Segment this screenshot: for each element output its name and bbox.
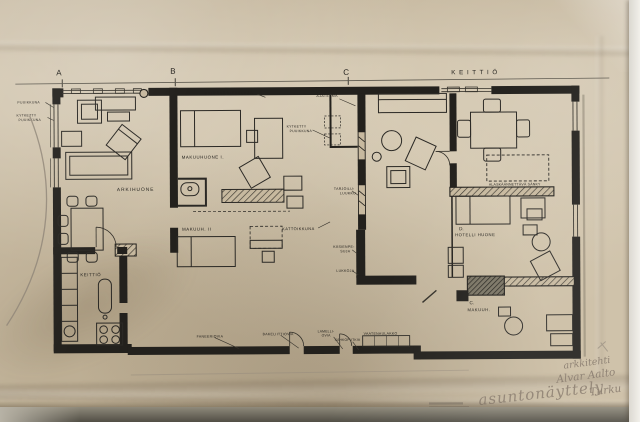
section-mark-c: C [343,68,349,77]
coat-rack [363,336,410,347]
photo-note-a: VALOKUVA- [310,89,334,93]
kitchen-header-label: K E I T T I Ö [451,69,498,76]
floor-plan-drawing: A B C K E I T T I Ö [0,0,640,422]
bedroom1-label: MAKUUHUONE I. [182,155,224,160]
coat-rack-label: VAATENAULAKKO [364,332,398,336]
section-mark-a: A [56,68,62,77]
table-surface-highlight [0,407,80,422]
dining-kitchen-furniture [457,99,548,181]
door-note-2: BAKELIITTIOVIA [263,332,294,336]
section-mark-b: B [170,67,175,76]
table-surface [0,407,640,422]
bedroom2-label: MAKUUH. II [182,227,211,232]
living-room-furniture [57,97,141,262]
door-note-4: SÄHKÖPUTKIA [335,338,361,342]
serving-hatch-note-b: LUUKKU [340,191,356,195]
left-window-note-1: PUUIKKUNA [17,100,40,104]
photo-of-floor-plan: A B C K E I T T I Ö [0,0,640,422]
bedroom1-furniture [177,110,341,212]
skylight-label: KATTOIKKUNA [282,226,315,231]
hotel-room-mark: D. [459,226,464,231]
left-window-note-2b: PUUIKKUNA [19,118,42,122]
kitchen-furniture [61,257,122,345]
section-datum-line [15,75,609,87]
hotel-room-furniture [448,196,573,347]
kitchen-room-label: KEITTIÖ [80,272,101,277]
door-note-1: FANEERIOVIA [197,335,224,339]
bedroom-c-label: MAKUUH. [468,307,491,312]
coupled-window-note-b: PUUIKKUNA [290,129,313,133]
handwash-note-b: SUJA [340,249,351,253]
handwash-note-a: KÄSIENPE- [333,245,355,249]
serving-hatch-note-a: TARJOILU- [334,187,355,191]
locks-note: LUKKOJA [336,269,354,273]
bedroom-c-mark: C. [469,300,474,305]
left-window-note-2a: KYTKETTY [16,113,36,117]
coupled-window-note-a: KYTKETTY [287,125,307,129]
photo-note-b: AJATELMA [316,94,338,98]
exterior-walls [50,86,581,362]
annotation-leaders [45,94,359,352]
door-swings [96,151,451,347]
living-room-label: ARKIHUONE [117,187,155,193]
mount-edge [629,0,640,422]
wall-treatment-note: SEINÄKÄSITTELYJÄ [204,91,253,95]
hotel-room-label: HOTELLI HUONE [455,232,495,237]
photo-room-furniture [372,93,447,187]
interior-walls [330,93,574,302]
door-note-3b: OVIA [322,333,331,337]
fold-bed-note: ALASKÄÄNNETTÄVÄ SÄNKY [489,182,541,186]
